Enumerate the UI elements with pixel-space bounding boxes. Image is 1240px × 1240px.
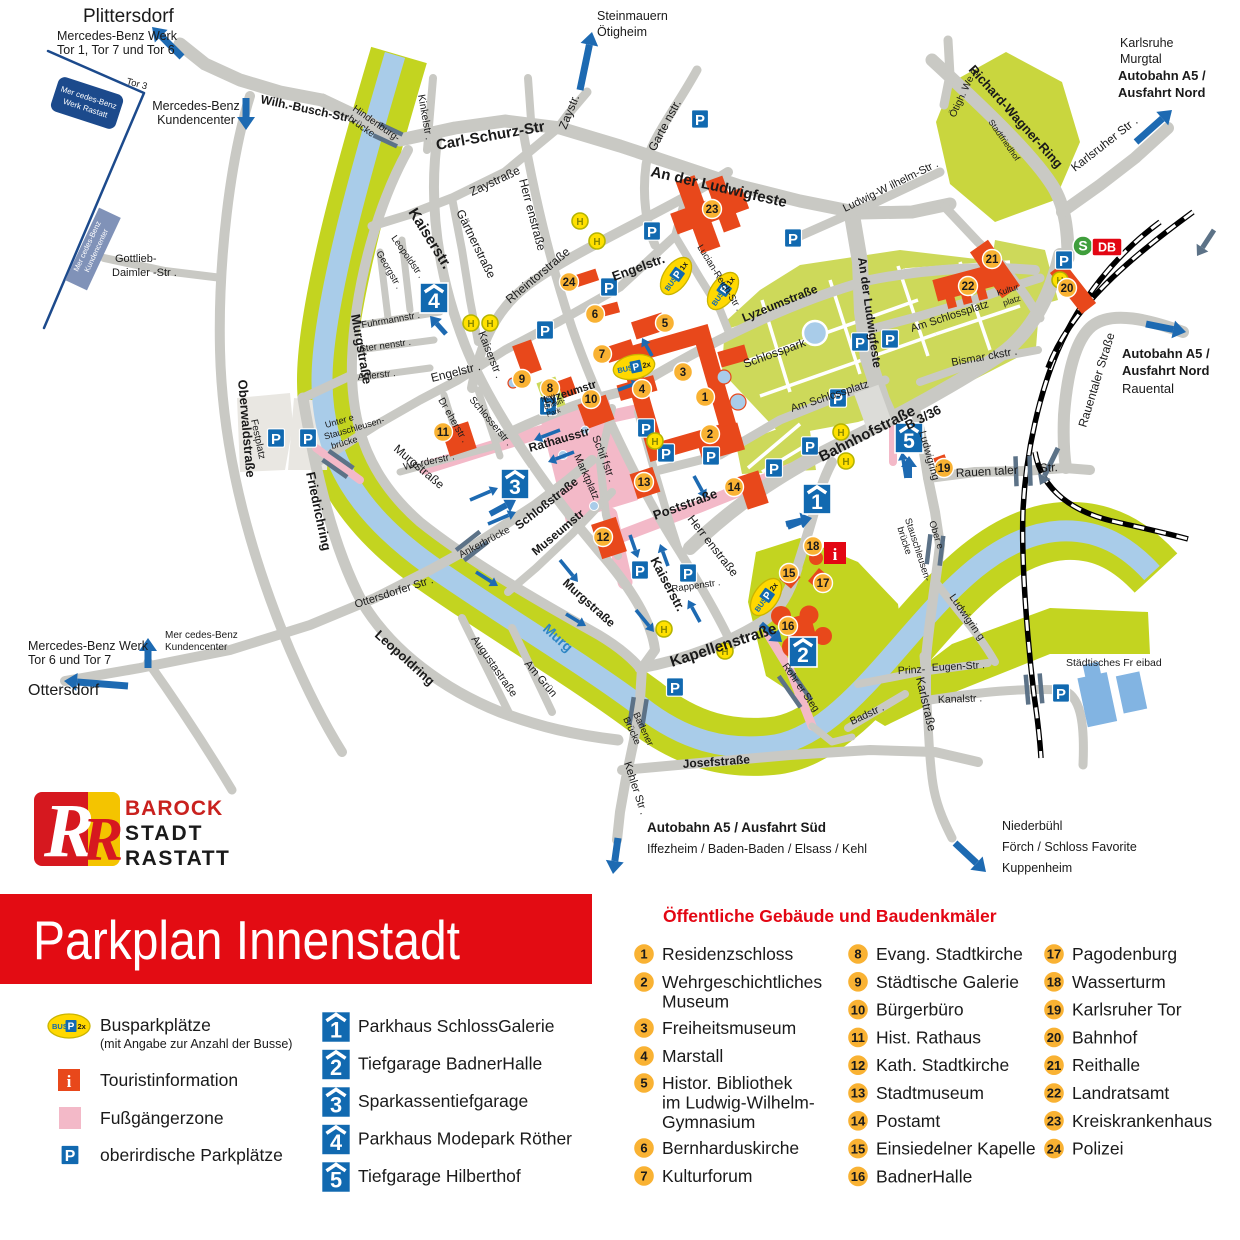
svg-text:P: P (661, 446, 671, 463)
svg-text:Daimler -Str .: Daimler -Str . (112, 267, 177, 279)
svg-text:Städtisches Fr eibad: Städtisches Fr eibad (1066, 657, 1162, 669)
svg-text:P: P (65, 1148, 76, 1165)
svg-text:21: 21 (986, 254, 999, 266)
svg-text:Marstall: Marstall (662, 1046, 723, 1066)
svg-text:oberirdische Parkplätze: oberirdische Parkplätze (100, 1145, 283, 1165)
svg-text:Gymnasium: Gymnasium (662, 1112, 755, 1132)
svg-text:Tor 1, Tor 7 und Tor 6: Tor 1, Tor 7 und Tor 6 (57, 43, 175, 57)
svg-text:Förch / Schloss Favorite: Förch / Schloss Favorite (1002, 840, 1137, 854)
svg-text:BUS: BUS (52, 1022, 68, 1031)
svg-text:14: 14 (851, 1113, 866, 1128)
svg-text:Karlsruhe: Karlsruhe (1120, 36, 1174, 50)
svg-text:5: 5 (640, 1076, 647, 1091)
svg-text:7: 7 (640, 1169, 647, 1184)
svg-text:im Ludwig-Wilhelm-: im Ludwig-Wilhelm- (662, 1093, 815, 1113)
svg-text:1: 1 (811, 491, 823, 514)
svg-text:STADT: STADT (125, 822, 203, 845)
svg-text:Ausfahrt Nord: Ausfahrt Nord (1122, 363, 1209, 378)
svg-text:5: 5 (903, 430, 915, 453)
svg-text:Postamt: Postamt (876, 1111, 940, 1131)
svg-text:Autobahn A5 / Ausfahrt Süd: Autobahn A5 / Ausfahrt Süd (647, 820, 826, 835)
svg-text:Parkhaus SchlossGalerie: Parkhaus SchlossGalerie (358, 1016, 554, 1036)
svg-text:24: 24 (1047, 1141, 1062, 1156)
svg-text:6: 6 (592, 309, 598, 321)
svg-text:P: P (1056, 686, 1066, 703)
svg-text:Parkplan Innenstadt: Parkplan Innenstadt (33, 909, 460, 971)
svg-text:P: P (805, 439, 815, 456)
svg-text:9: 9 (519, 374, 525, 386)
svg-text:Bernharduskirche: Bernharduskirche (662, 1138, 799, 1158)
svg-text:H: H (576, 217, 583, 228)
svg-text:21: 21 (1047, 1058, 1061, 1073)
svg-text:4: 4 (639, 384, 646, 396)
svg-text:24: 24 (563, 277, 576, 289)
svg-text:Wehrgeschichtliches: Wehrgeschichtliches (662, 972, 822, 992)
svg-text:H: H (651, 437, 658, 448)
svg-text:20: 20 (1047, 1030, 1061, 1045)
svg-text:H: H (486, 319, 493, 330)
svg-text:P: P (1059, 253, 1069, 270)
svg-text:11: 11 (851, 1030, 865, 1045)
svg-text:Rauental: Rauental (1122, 381, 1174, 396)
svg-text:18: 18 (807, 541, 820, 553)
svg-text:15: 15 (783, 568, 796, 580)
svg-text:(mit Angabe zur Anzahl der Bus: (mit Angabe zur Anzahl der Busse) (100, 1037, 292, 1051)
svg-text:i: i (833, 545, 838, 564)
svg-text:10: 10 (585, 394, 598, 406)
svg-text:i: i (67, 1072, 72, 1091)
svg-text:Tiefgarage Hilberthof: Tiefgarage Hilberthof (358, 1166, 521, 1186)
svg-text:Ötigheim: Ötigheim (597, 25, 647, 39)
svg-text:Sparkassentiefgarage: Sparkassentiefgarage (358, 1091, 528, 1111)
svg-text:23: 23 (706, 204, 719, 216)
svg-text:2: 2 (330, 1055, 342, 1080)
svg-text:Museum: Museum (662, 992, 729, 1012)
svg-text:22: 22 (962, 281, 975, 293)
svg-text:Str.: Str. (1039, 460, 1058, 475)
svg-text:Mercedes-Benz Werk: Mercedes-Benz Werk (57, 29, 178, 43)
svg-text:Landratsamt: Landratsamt (1072, 1083, 1169, 1103)
svg-text:P: P (604, 280, 614, 297)
svg-text:17: 17 (817, 578, 830, 590)
svg-text:Pagodenburg: Pagodenburg (1072, 944, 1177, 964)
svg-text:Kundencenter: Kundencenter (157, 113, 235, 127)
svg-text:P: P (788, 231, 798, 248)
svg-text:4: 4 (640, 1049, 648, 1064)
svg-text:P: P (885, 332, 895, 349)
svg-text:5: 5 (330, 1168, 342, 1193)
svg-text:P: P (647, 224, 657, 241)
svg-text:17: 17 (1047, 947, 1061, 962)
svg-text:Kundencenter: Kundencenter (165, 642, 228, 653)
svg-text:4: 4 (428, 290, 440, 313)
svg-text:H: H (660, 625, 667, 636)
svg-text:P: P (540, 323, 550, 340)
svg-text:Histor. Bibliothek: Histor. Bibliothek (662, 1073, 793, 1093)
svg-text:18: 18 (1047, 974, 1061, 989)
svg-text:12: 12 (597, 532, 610, 544)
svg-text:DB: DB (1098, 241, 1116, 255)
svg-text:2: 2 (797, 644, 809, 667)
svg-text:Ottersdorf: Ottersdorf (28, 682, 100, 699)
svg-text:16: 16 (851, 1169, 865, 1184)
svg-text:RASTATT: RASTATT (125, 847, 230, 870)
svg-text:Öffentliche Gebäude und Bauden: Öffentliche Gebäude und Baudenkmäler (663, 906, 997, 926)
svg-text:Residenzschloss: Residenzschloss (662, 944, 794, 964)
svg-text:S: S (1078, 238, 1087, 254)
svg-text:Niederbühl: Niederbühl (1002, 819, 1062, 833)
svg-text:Prinz-: Prinz- (898, 664, 927, 677)
svg-text:Kulturforum: Kulturforum (662, 1166, 752, 1186)
svg-text:1: 1 (330, 1018, 342, 1043)
svg-text:Bürgerbüro: Bürgerbüro (876, 1000, 964, 1020)
svg-text:Mercedes-Benz Werk: Mercedes-Benz Werk (28, 639, 149, 653)
svg-text:3: 3 (330, 1093, 342, 1118)
svg-text:10: 10 (851, 1002, 865, 1017)
svg-text:Stadtmuseum: Stadtmuseum (876, 1083, 984, 1103)
svg-text:P: P (271, 431, 281, 448)
svg-text:Kanalstr .: Kanalstr . (938, 692, 983, 706)
svg-text:Gottlieb-: Gottlieb- (115, 253, 157, 265)
svg-text:Städtische Galerie: Städtische Galerie (876, 972, 1019, 992)
svg-text:R: R (81, 806, 123, 874)
svg-text:Touristinformation: Touristinformation (100, 1070, 238, 1090)
svg-text:3: 3 (680, 367, 686, 379)
svg-text:13: 13 (851, 1086, 865, 1101)
svg-text:H: H (593, 237, 600, 248)
svg-text:9: 9 (854, 974, 861, 989)
svg-text:H: H (467, 319, 474, 330)
svg-text:Reithalle: Reithalle (1072, 1055, 1140, 1075)
svg-text:Polizei: Polizei (1072, 1139, 1124, 1159)
svg-text:Fußgängerzone: Fußgängerzone (100, 1108, 224, 1128)
svg-text:13: 13 (638, 477, 651, 489)
svg-text:Evang. Stadtkirche: Evang. Stadtkirche (876, 944, 1023, 964)
svg-text:2: 2 (707, 429, 713, 441)
svg-text:Murgtal: Murgtal (1120, 52, 1162, 66)
svg-text:Hist. Rathaus: Hist. Rathaus (876, 1027, 981, 1047)
svg-text:Kuppenheim: Kuppenheim (1002, 861, 1072, 875)
svg-text:22: 22 (1047, 1086, 1061, 1101)
svg-text:P: P (670, 680, 680, 697)
svg-text:Autobahn A5 /: Autobahn A5 / (1122, 346, 1210, 361)
svg-text:Busparkplätze: Busparkplätze (100, 1015, 211, 1035)
svg-text:Mercedes-Benz: Mercedes-Benz (152, 99, 240, 113)
svg-text:P: P (706, 449, 716, 466)
svg-text:2: 2 (640, 975, 647, 990)
svg-text:BadnerHalle: BadnerHalle (876, 1166, 972, 1186)
svg-text:3: 3 (509, 476, 521, 499)
svg-text:P: P (303, 431, 313, 448)
svg-text:11: 11 (437, 427, 450, 439)
svg-text:14: 14 (728, 482, 741, 494)
svg-text:P: P (695, 112, 705, 129)
svg-text:Ausfahrt Nord: Ausfahrt Nord (1118, 85, 1205, 100)
svg-text:P: P (769, 461, 779, 478)
svg-text:Tor 6 und Tor 7: Tor 6 und Tor 7 (28, 653, 111, 667)
svg-text:20: 20 (1061, 283, 1074, 295)
svg-text:Einsiedelner Kapelle: Einsiedelner Kapelle (876, 1139, 1036, 1159)
svg-text:BAROCK: BAROCK (125, 797, 223, 820)
svg-text:19: 19 (1047, 1002, 1061, 1017)
svg-text:1: 1 (702, 392, 709, 404)
svg-text:Plittersdorf: Plittersdorf (83, 6, 175, 27)
svg-text:3: 3 (640, 1021, 647, 1036)
svg-text:2x: 2x (78, 1022, 87, 1031)
svg-text:P: P (855, 335, 865, 352)
svg-text:P: P (68, 1022, 75, 1033)
svg-text:Bahnhof: Bahnhof (1072, 1027, 1137, 1047)
svg-text:16: 16 (782, 621, 795, 633)
svg-text:Wasserturm: Wasserturm (1072, 972, 1166, 992)
svg-text:12: 12 (851, 1058, 865, 1073)
svg-text:Kath. Stadtkirche: Kath. Stadtkirche (876, 1055, 1009, 1075)
svg-text:Kreiskrankenhaus: Kreiskrankenhaus (1072, 1111, 1212, 1131)
svg-text:Mer cedes-Benz: Mer cedes-Benz (165, 630, 238, 641)
svg-text:4: 4 (330, 1130, 342, 1155)
svg-text:23: 23 (1047, 1113, 1061, 1128)
svg-text:Freiheitsmuseum: Freiheitsmuseum (662, 1018, 796, 1038)
svg-text:P: P (635, 563, 645, 580)
svg-text:7: 7 (599, 349, 605, 361)
svg-text:Iffezheim / Baden-Baden / Elsa: Iffezheim / Baden-Baden / Elsass / Kehl (647, 842, 867, 856)
svg-text:Parkhaus Modepark Röther: Parkhaus Modepark Röther (358, 1129, 572, 1149)
svg-text:5: 5 (662, 318, 669, 330)
svg-text:6: 6 (640, 1141, 647, 1156)
svg-text:Tiefgarage BadnerHalle: Tiefgarage BadnerHalle (358, 1054, 542, 1074)
svg-text:15: 15 (851, 1141, 865, 1156)
svg-text:Karlsruher Tor: Karlsruher Tor (1072, 1000, 1182, 1020)
svg-text:1: 1 (640, 947, 647, 962)
svg-text:Steinmauern: Steinmauern (597, 9, 668, 23)
svg-text:H: H (842, 457, 849, 468)
svg-text:8: 8 (854, 947, 861, 962)
svg-text:Autobahn A5 /: Autobahn A5 / (1118, 68, 1206, 83)
